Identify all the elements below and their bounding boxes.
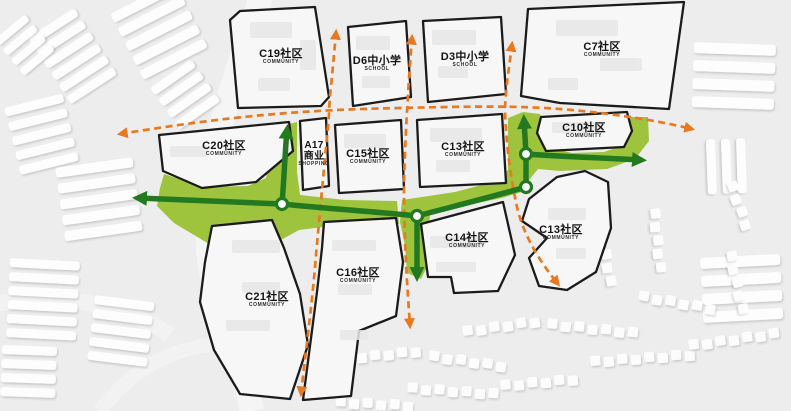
block-c15 <box>335 120 404 193</box>
greenway-node <box>277 199 288 210</box>
block-d6 <box>348 21 411 106</box>
block-d3 <box>423 17 506 102</box>
greenway-node <box>521 182 532 193</box>
block-a17 <box>300 118 329 190</box>
base-map <box>0 0 791 411</box>
block-c13-north <box>417 114 506 187</box>
greenway-node <box>412 211 423 222</box>
urban-plan-map: C19社区COMMUNITY D6中小学SCHOOL D3中小学SCHOOL C… <box>0 0 791 411</box>
block-c7 <box>521 2 684 109</box>
greenway-node <box>521 149 532 160</box>
